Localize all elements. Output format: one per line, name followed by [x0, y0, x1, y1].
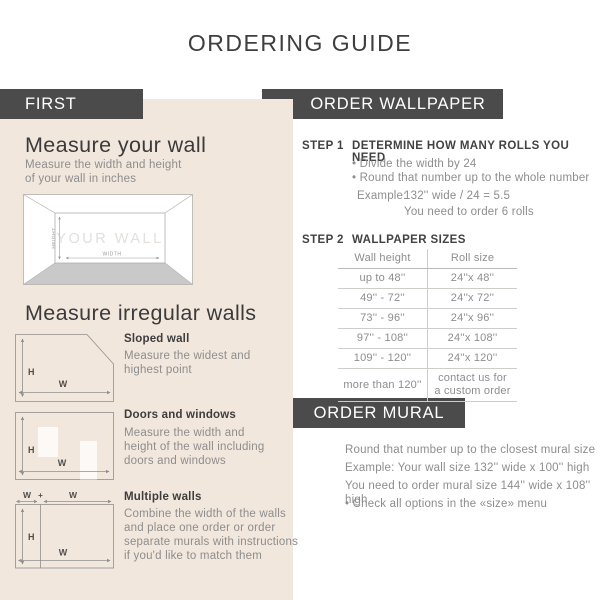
your-wall-diagram: YOUR WALL HEIGHT WIDTH: [23, 194, 193, 285]
h-label: H: [28, 367, 35, 377]
table-row: 73'' - 96'' 24''x 96'': [338, 309, 517, 329]
multiple-walls-body: Combine the width of the walls and place…: [124, 507, 298, 563]
table-cell: more than 120'': [338, 369, 428, 401]
h-label: H: [28, 532, 35, 542]
wallpaper-sizes-table: Wall height Roll size up to 48'' 24''x 4…: [338, 249, 517, 402]
w-label: W: [69, 490, 78, 500]
table-cell: 73'' - 96'': [338, 309, 428, 328]
step1-label: STEP 1: [302, 140, 344, 152]
table-header-wall-height: Wall height: [338, 249, 428, 268]
table-cell: 24''x 48'': [428, 272, 517, 285]
table-cell: up to 48'': [338, 269, 428, 288]
table-cell: 24''x 120'': [428, 352, 517, 365]
doors-windows-diagram: H W: [15, 412, 114, 480]
table-cell: 109'' - 120'': [338, 349, 428, 368]
table-cell: 97'' - 108'': [338, 329, 428, 348]
table-cell: 24''x 96'': [428, 312, 517, 325]
first-badge: FIRST: [0, 89, 143, 119]
table-header-row: Wall height Roll size: [338, 249, 517, 269]
table-cell: contact us for a custom order: [428, 372, 517, 398]
sloped-wall-title: Sloped wall: [124, 333, 189, 345]
mural-line: • Check all options in the «size» menu: [345, 497, 547, 511]
table-header-roll-size: Roll size: [428, 252, 517, 265]
mural-line: Round that number up to the closest mura…: [345, 443, 595, 457]
width-arrow-label: WIDTH: [103, 252, 122, 258]
table-row: 97'' - 108'' 24''x 108'': [338, 329, 517, 349]
window-shape: [38, 427, 58, 457]
h-label: H: [28, 445, 35, 455]
step1-example-result: You need to order 6 rolls: [404, 205, 534, 219]
table-row: more than 120'' contact us for a custom …: [338, 369, 517, 402]
step2-title: WALLPAPER SIZES: [352, 234, 466, 246]
table-cell: 24''x 108'': [428, 332, 517, 345]
step1-example-label: Example:: [357, 189, 407, 203]
w-label: W: [59, 379, 68, 389]
table-row: 49'' - 72'' 24''x 72'': [338, 289, 517, 309]
multiple-walls-title: Multiple walls: [124, 491, 202, 503]
sloped-wall-diagram: H W: [15, 334, 114, 402]
doors-windows-title: Doors and windows: [124, 409, 236, 421]
step2-label: STEP 2: [302, 234, 344, 246]
height-arrow-label: HEIGHT: [51, 227, 57, 248]
door-shape: [80, 441, 97, 480]
your-wall-label: YOUR WALL: [56, 231, 163, 247]
table-row: up to 48'' 24''x 48'': [338, 269, 517, 289]
sloped-wall-body: Measure the widest and highest point: [124, 349, 251, 377]
measure-wall-heading: Measure your wall: [25, 133, 206, 158]
step1-bullet: • Round that number up to the whole numb…: [352, 171, 589, 185]
multiple-walls-diagram: W + W H W: [15, 490, 114, 573]
table-cell: 24''x 72'': [428, 292, 517, 305]
mural-line: Example: Your wall size 132'' wide x 100…: [345, 461, 590, 475]
step1-example-calc: 132'' wide / 24 = 5.5: [404, 189, 510, 203]
measure-wall-subtext: Measure the width and height of your wal…: [25, 158, 181, 186]
doors-windows-body: Measure the width and height of the wall…: [124, 426, 265, 468]
table-row: 109'' - 120'' 24''x 120'': [338, 349, 517, 369]
w-label: W: [58, 458, 67, 468]
page-title: ORDERING GUIDE: [0, 30, 600, 57]
w-label: W: [59, 548, 68, 558]
ordering-guide-page: ORDERING GUIDE FIRST ORDER WALLPAPER ORD…: [0, 0, 600, 600]
w-label: W: [23, 490, 32, 500]
order-wallpaper-badge: ORDER WALLPAPER: [262, 89, 503, 119]
irregular-walls-heading: Measure irregular walls: [25, 301, 256, 326]
table-cell: 49'' - 72'': [338, 289, 428, 308]
step1-bullet: • Divide the width by 24: [352, 157, 477, 171]
plus-label: +: [38, 491, 43, 500]
